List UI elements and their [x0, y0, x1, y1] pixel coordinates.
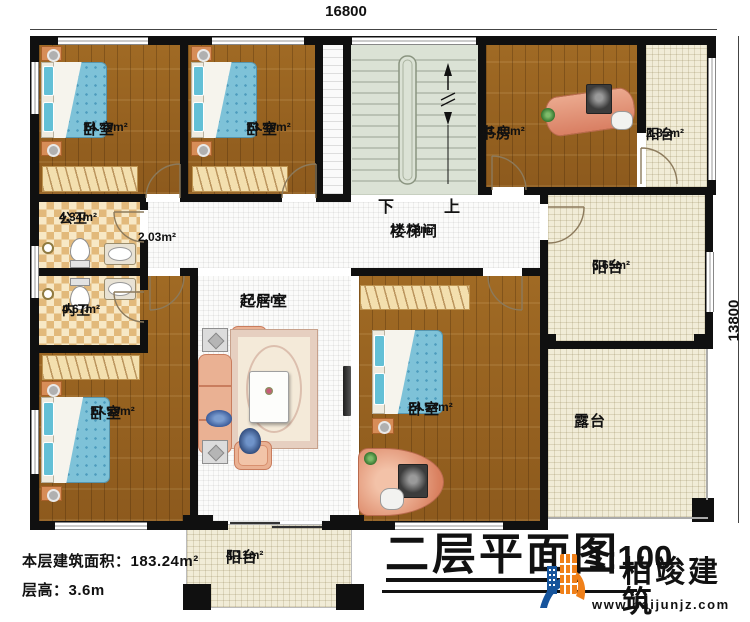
shower-head — [42, 288, 54, 300]
wall — [316, 194, 351, 202]
plant — [541, 108, 555, 122]
window — [55, 522, 147, 530]
plant — [364, 452, 377, 465]
nightstand — [372, 418, 394, 434]
stair-down-label: 下 — [374, 193, 398, 217]
window — [31, 410, 39, 474]
side-table — [202, 328, 228, 352]
wardrobe — [42, 355, 140, 380]
dimension-line-right — [738, 36, 739, 523]
floor-height-text: 层高：3.6m — [22, 579, 105, 600]
pillow — [193, 66, 204, 96]
wardrobe — [42, 166, 138, 192]
pillow — [374, 335, 385, 367]
toilet-tank — [70, 278, 90, 286]
nightstand — [41, 486, 62, 501]
wall — [140, 320, 148, 353]
wall — [637, 36, 646, 133]
terrace-edge — [706, 349, 708, 500]
wall — [343, 36, 351, 195]
wall — [351, 268, 483, 276]
terrace-edge — [548, 517, 708, 519]
wall — [190, 268, 198, 530]
wardrobe — [360, 285, 470, 310]
terrace-floor — [548, 349, 706, 517]
sink — [104, 278, 136, 300]
nightstand — [41, 381, 62, 396]
floor-area-text: 本层建筑面积：183.24m² — [22, 550, 199, 571]
coffee-table — [249, 371, 289, 423]
balcony-top-right-floor — [646, 45, 707, 187]
side-table — [202, 440, 228, 464]
wall — [180, 194, 282, 202]
wall — [540, 240, 548, 268]
pillar — [330, 515, 364, 530]
wall — [30, 194, 146, 202]
office-chair — [380, 488, 404, 510]
hall-floor — [148, 202, 540, 268]
window — [212, 37, 304, 45]
wall — [540, 195, 548, 204]
window — [58, 37, 148, 45]
wall — [180, 36, 188, 194]
pillow — [374, 373, 385, 405]
wall — [140, 240, 148, 290]
pillar — [183, 584, 211, 610]
tv — [343, 366, 351, 416]
wardrobe — [192, 166, 288, 192]
nightstand — [41, 46, 62, 61]
window — [352, 37, 476, 45]
computer-monitor — [586, 84, 612, 114]
duct-shaft — [323, 45, 343, 194]
dimension-line-top — [30, 29, 717, 30]
pillow — [43, 102, 54, 132]
pillow — [43, 442, 54, 476]
brand-website: www.baijunjz.com — [592, 597, 730, 612]
baijun-logo-icon — [538, 550, 596, 610]
nightstand — [191, 46, 212, 61]
nightstand — [191, 141, 212, 156]
sink — [104, 243, 136, 265]
wall — [140, 202, 148, 210]
stair-up-label: 上 — [440, 193, 464, 217]
shower-head — [42, 242, 54, 254]
title-underline — [382, 590, 634, 593]
stairwell-floor — [351, 45, 478, 195]
window — [708, 58, 716, 180]
wall — [524, 187, 716, 195]
wall — [315, 36, 323, 194]
pillar — [694, 334, 712, 349]
toilet-tank — [70, 260, 90, 268]
window — [31, 62, 39, 114]
wall — [30, 345, 148, 353]
sofa — [198, 354, 232, 454]
wall — [548, 341, 710, 349]
pillar — [540, 334, 556, 349]
toilet — [70, 238, 90, 262]
nightstand — [41, 141, 62, 156]
dimension-top: 16800 — [306, 3, 386, 20]
wall — [540, 268, 548, 530]
dimension-right: 13800 — [726, 291, 743, 351]
office-chair — [611, 111, 633, 130]
pillow — [193, 102, 204, 132]
wall — [478, 36, 486, 195]
pillow — [43, 402, 54, 436]
person-figure — [239, 428, 261, 454]
pillow — [43, 66, 54, 96]
window — [31, 246, 39, 298]
wall — [30, 268, 148, 276]
person-figure — [206, 410, 232, 427]
pillar — [183, 515, 213, 530]
window — [706, 252, 714, 312]
pillar — [336, 584, 364, 610]
floor-plan: 16800 13800 卧室 14.49m² 卧室 13.40m² 书房 13.… — [0, 0, 750, 622]
window — [395, 522, 503, 530]
